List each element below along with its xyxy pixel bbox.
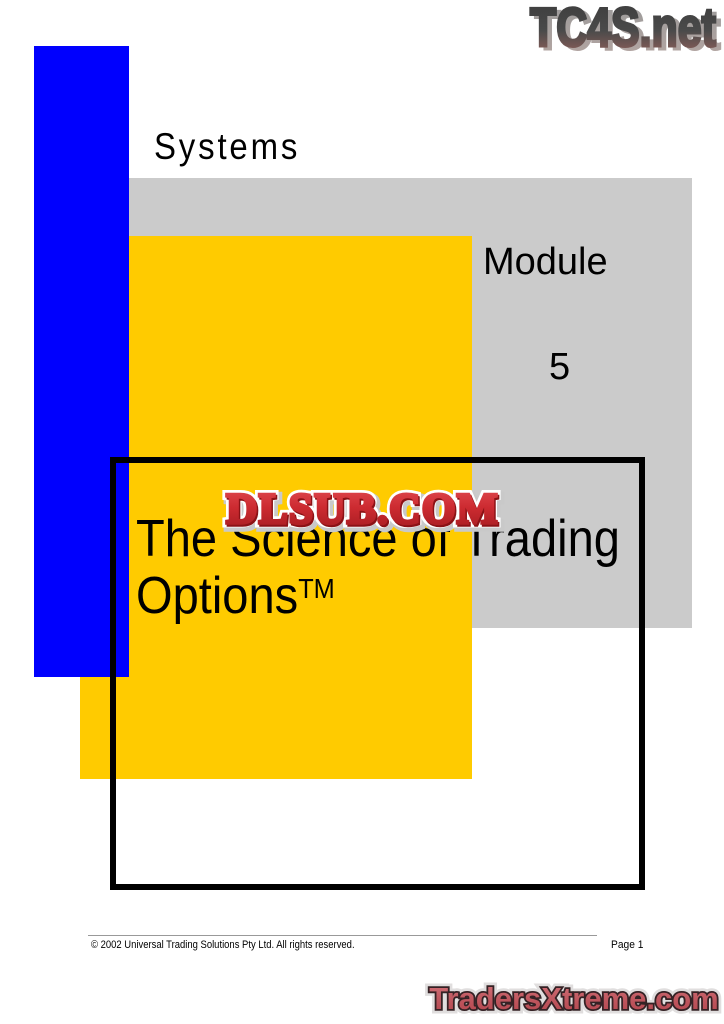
svg-text:DLSUB.COM: DLSUB.COM <box>226 486 499 533</box>
svg-text:TradersXtreme.com: TradersXtreme.com <box>429 981 718 1016</box>
svg-text:TC4S.net: TC4S.net <box>530 0 716 58</box>
